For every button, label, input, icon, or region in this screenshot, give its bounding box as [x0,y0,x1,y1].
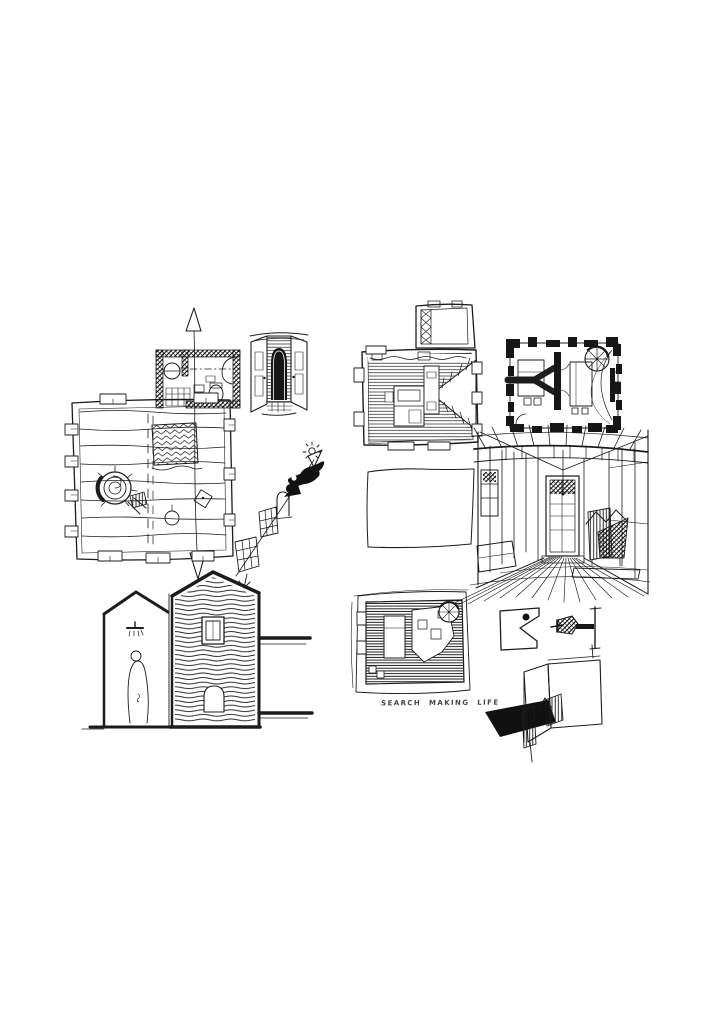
window-tabs [65,393,235,563]
plan-upper-left [65,308,240,579]
sketchbook-page: SEARCH MAKING LIFE [0,0,724,1024]
diagram-equation [500,607,601,650]
sketch-canvas [0,0,724,1024]
bed [384,616,405,658]
arched-niche [204,686,224,712]
end-door [542,476,584,563]
right-door-leaf [291,336,307,410]
hatched-door [545,694,563,726]
hatched-door [522,706,536,748]
empty-frame [367,469,474,548]
handwritten-caption: SEARCH MAKING LIFE [381,699,492,714]
plan-bottom-middle [351,590,470,694]
plan-poche [506,337,622,433]
doorway-vignette [250,333,308,416]
diagonal-arrow-sequence [235,442,324,588]
hatched-bed [152,423,198,465]
shower-icon [127,622,143,636]
notched-square [500,608,539,650]
black-dot [523,614,530,621]
sun-icon [303,442,321,458]
forked-wall [508,352,569,410]
main-room-plan [65,393,235,563]
gecko-silhouette [286,461,324,492]
spiral-stair [439,602,459,622]
left-door-leaf [251,336,267,412]
human-figure [128,651,148,723]
floor-planks [436,557,644,612]
axon-corner [485,645,602,762]
section-two-gables [82,572,312,729]
interior-perspective [436,425,650,612]
plan-upper-right [354,301,482,450]
window [202,617,224,644]
black-flag [558,607,601,649]
spiral-stair [585,347,609,371]
annex-room [416,301,475,348]
spiral-hearth [98,466,147,514]
